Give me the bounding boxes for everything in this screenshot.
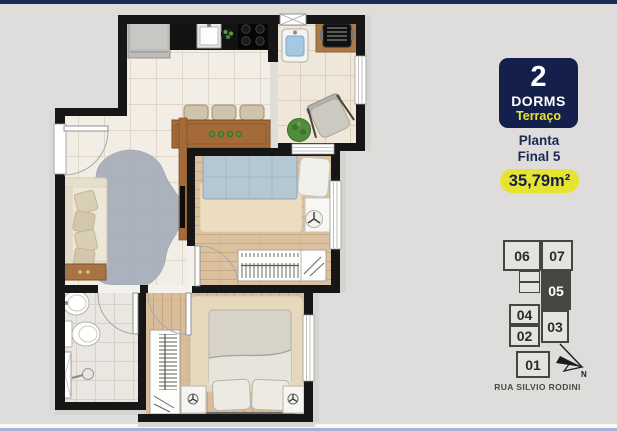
- keyplan-unit-05-highlighted: 05: [541, 271, 571, 310]
- north-label: N: [581, 370, 587, 379]
- north-arrow-icon: N: [554, 340, 592, 380]
- page: { "sidebar": { "badge": { "number": "2",…: [0, 0, 617, 431]
- laundry-tank: [282, 29, 308, 62]
- wardrobe-bedroom1: [238, 250, 326, 281]
- keyplan-unit-02: 02: [509, 325, 540, 347]
- keyplan-service-box: [519, 271, 540, 282]
- dorms-number: 2: [530, 63, 546, 92]
- dorms-badge: 2 DORMS Terraço: [499, 58, 578, 128]
- street-label: RUA SILVIO RODINI: [470, 382, 605, 392]
- area-badge: 35,79m²: [500, 169, 579, 193]
- keyplan-unit-03: 03: [541, 310, 569, 343]
- terrace-label: Terraço: [516, 110, 561, 123]
- sofa: [63, 178, 107, 270]
- table-lamp-right: [288, 394, 298, 404]
- keyplan-unit-04: 04: [509, 304, 540, 325]
- dorms-label: DORMS: [511, 94, 566, 108]
- window-bedroom2: [303, 315, 314, 381]
- window-terrace: [355, 56, 366, 104]
- keyplan-service-box: [519, 282, 540, 293]
- potted-plant: [288, 119, 311, 142]
- fruit-bowl: [222, 28, 235, 41]
- area-value: 35,79m²: [509, 172, 570, 191]
- washbasin: [63, 291, 89, 315]
- keyplan-unit-07: 07: [541, 240, 573, 271]
- desk-chair: [306, 211, 323, 228]
- table-lamp-left: [188, 394, 198, 404]
- plan-title-line2: Final 5: [489, 149, 589, 165]
- window-bedroom1: [330, 181, 341, 249]
- wardrobe-bedroom2: [150, 330, 180, 414]
- toilet: [63, 321, 100, 347]
- double-bed: [205, 310, 295, 417]
- cooktop: [238, 21, 268, 49]
- sideboard: [64, 264, 106, 280]
- keyplan-unit-01: 01: [516, 351, 550, 378]
- dining-stools: [184, 105, 264, 120]
- keyplan: 06 07 05 04 02 03 01 N RUA SILVIO RODINI: [470, 230, 605, 400]
- kitchen-sink: [197, 23, 221, 48]
- single-bed: [203, 155, 331, 199]
- tv-panel: [179, 118, 187, 240]
- fridge: [128, 20, 170, 58]
- plan-title-line1: Planta: [489, 133, 589, 149]
- keyplan-unit-06: 06: [503, 240, 541, 271]
- plan-title: Planta Final 5: [489, 133, 589, 165]
- window-bedroom1-terrace: [292, 144, 334, 154]
- duct-shaft: [280, 14, 306, 25]
- floor-plan: [0, 0, 400, 431]
